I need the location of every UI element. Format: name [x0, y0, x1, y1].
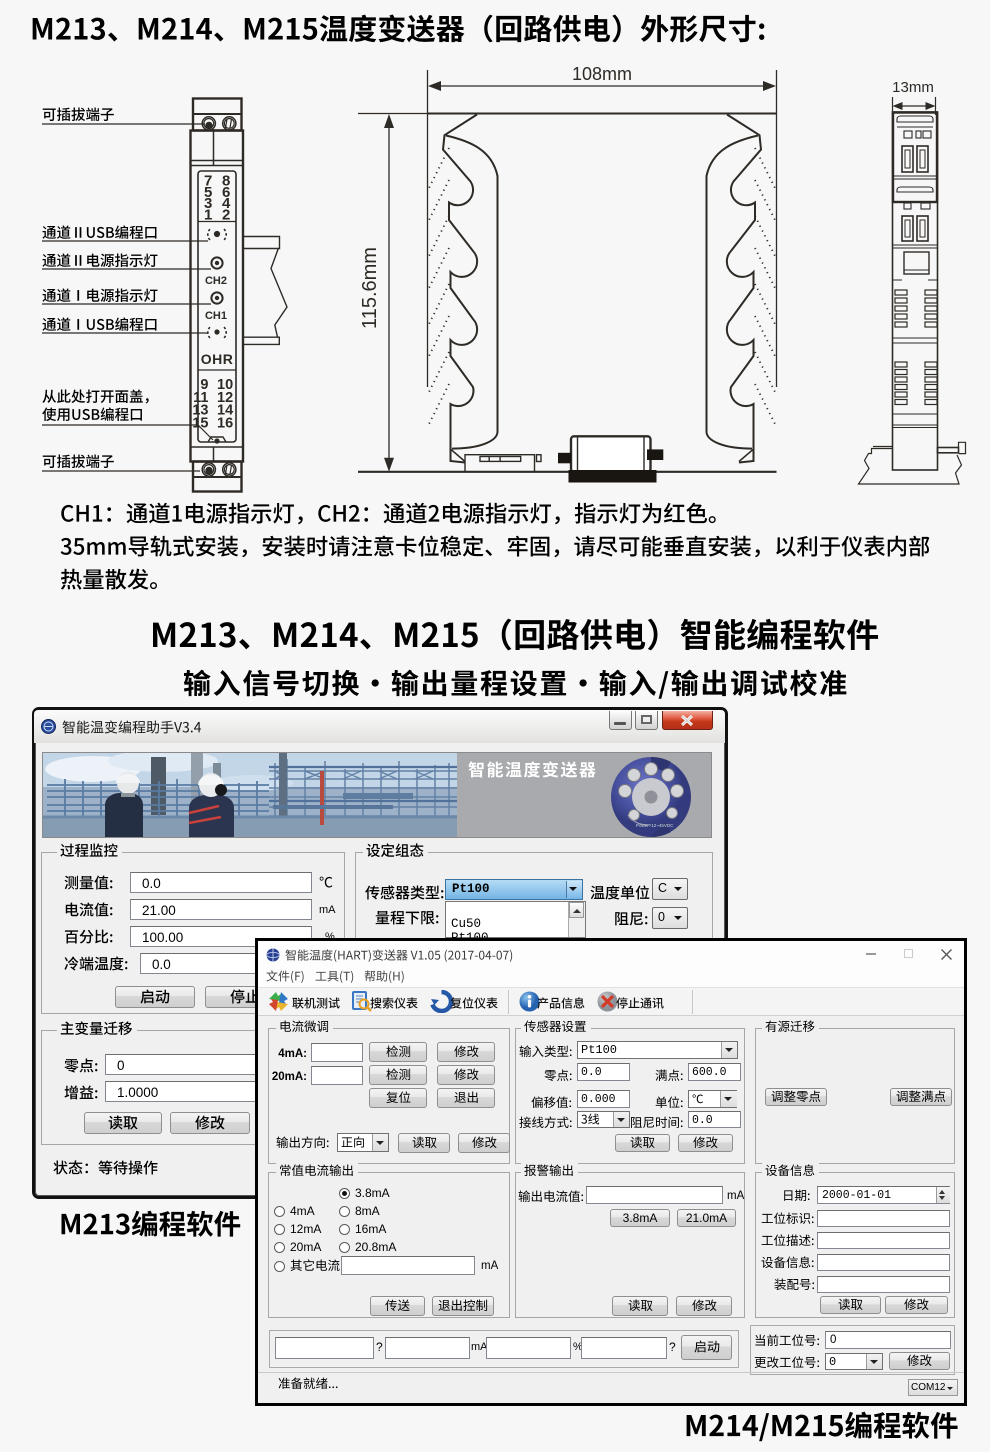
- svg-text:2: 2: [222, 206, 230, 223]
- svg-text:CH2: CH2: [205, 275, 227, 287]
- svg-text:108mm: 108mm: [572, 64, 632, 84]
- svg-text:13mm: 13mm: [892, 79, 934, 96]
- svg-text:1: 1: [204, 206, 212, 223]
- svg-text:16: 16: [217, 415, 233, 431]
- svg-text:OHR: OHR: [201, 351, 234, 367]
- svg-text:CH1: CH1: [205, 310, 227, 322]
- svg-text:15: 15: [192, 415, 208, 431]
- svg-text:115.6mm: 115.6mm: [359, 247, 381, 329]
- svg-text:Power: 12~45VDC: Power: 12~45VDC: [636, 823, 674, 828]
